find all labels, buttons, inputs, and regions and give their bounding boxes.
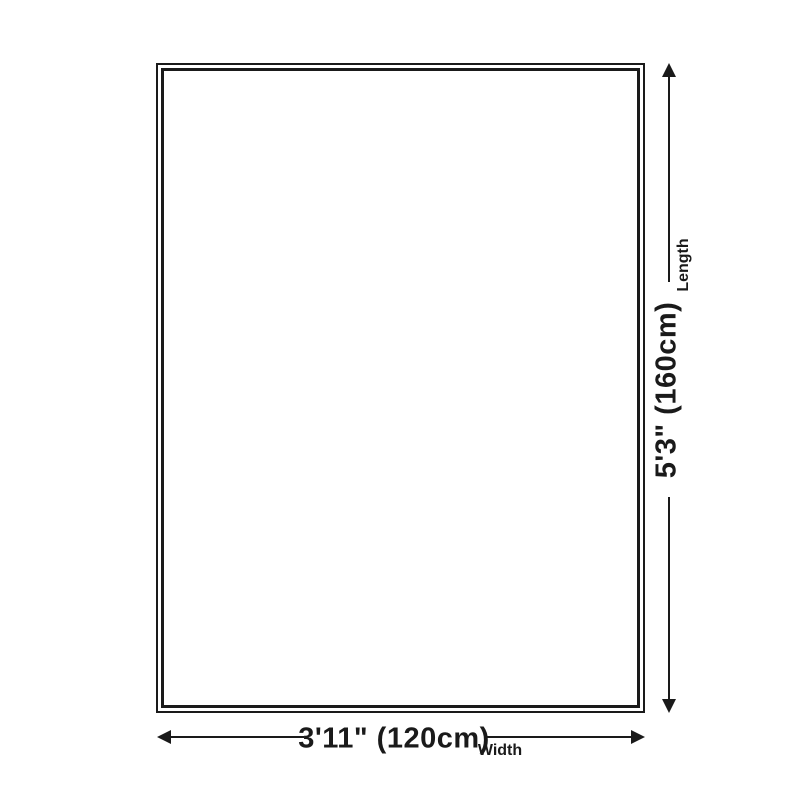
length-dimension-line-bottom bbox=[668, 497, 670, 700]
width-dimension-line-right bbox=[486, 736, 632, 738]
width-dimension-line-left bbox=[169, 736, 304, 738]
product-outline-inner bbox=[161, 68, 640, 708]
width-dimension-value: 3'11" (120cm) bbox=[298, 725, 490, 754]
arrow-down-icon bbox=[662, 699, 676, 713]
arrow-right-icon bbox=[631, 730, 645, 744]
size-diagram: Length 5'3" (160cm) 3'11" (120cm) Width bbox=[0, 0, 800, 800]
width-dimension-label: Width bbox=[478, 743, 522, 759]
length-dimension-value: 5'3" (160cm) bbox=[653, 302, 682, 479]
length-dimension-line-top bbox=[668, 75, 670, 282]
product-outline bbox=[156, 63, 645, 713]
length-dimension-label: Length bbox=[676, 238, 692, 291]
